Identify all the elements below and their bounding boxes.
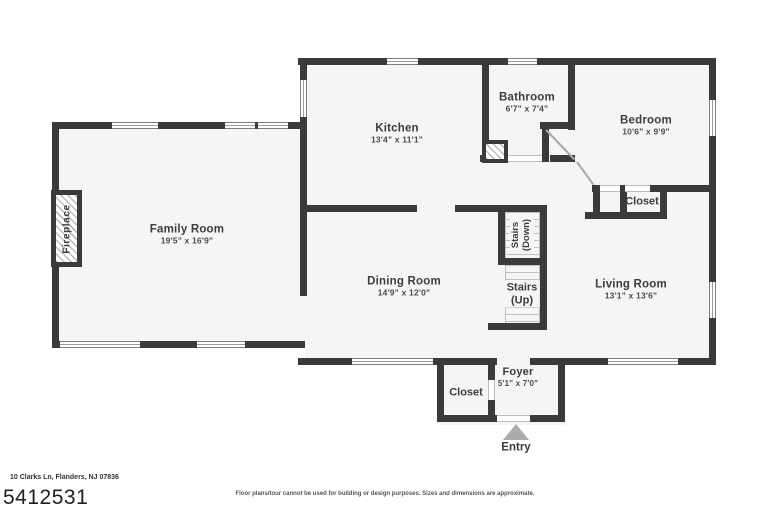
window (112, 122, 158, 129)
window (608, 358, 678, 365)
wall (488, 400, 495, 418)
wall (498, 205, 505, 265)
wall (558, 362, 565, 422)
window (387, 58, 418, 65)
footer-disclaimer: Floor plans/tour cannot be used for buil… (235, 491, 534, 497)
fireplace-label: Fireplace (61, 204, 72, 253)
stairs-down-label: Stairs (Down) (510, 217, 534, 253)
room-label-kitchen: Kitchen 13'4" x 11'1" (371, 123, 423, 146)
wall (488, 362, 495, 380)
stairs-up-label: Stairs (Up) (505, 280, 540, 307)
wall (488, 323, 547, 330)
wall (305, 205, 417, 212)
window (258, 122, 288, 129)
chimney (482, 140, 508, 163)
wall (542, 122, 549, 162)
window (197, 341, 245, 348)
room-label-bedroom: Bedroom 10'6" x 9'9" (620, 115, 672, 138)
wall (660, 185, 667, 219)
door-threshold (508, 155, 542, 162)
wall (298, 58, 716, 65)
entry-arrow-icon (503, 424, 529, 440)
wall (593, 185, 600, 219)
footer-mls-number: 5412531 (3, 486, 88, 510)
window (60, 341, 140, 348)
room-label-foyer-closet: Closet (449, 387, 483, 400)
footer-address: 10 Clarks Ln, Flanders, NJ 07836 (10, 474, 119, 481)
fireplace: Fireplace (51, 190, 82, 267)
window (709, 282, 716, 318)
room-label-bedroom-closet: Closet (625, 196, 659, 209)
room-label-family-room: Family Room 19'5" x 16'9" (150, 224, 224, 247)
door-threshold (600, 185, 620, 192)
window (300, 80, 307, 117)
wall (437, 358, 444, 422)
room-label-foyer: Foyer 5'1" x 7'0" (498, 366, 538, 388)
window (352, 358, 433, 365)
wall (568, 58, 575, 130)
room-label-living-room: Living Room 13'1" x 13'6" (595, 279, 667, 302)
window (508, 58, 537, 65)
room-label-dining-room: Dining Room 14'9" x 12'0" (367, 276, 441, 299)
wall (540, 205, 547, 330)
door-threshold (497, 415, 530, 422)
window (709, 100, 716, 136)
wall (482, 58, 489, 140)
window (225, 122, 255, 129)
floorplan-canvas: Fireplace Kitchen 13'4" x 11'1" Bathroom… (0, 0, 768, 512)
door-threshold (488, 380, 495, 400)
door-threshold (625, 185, 650, 192)
room-label-bathroom: Bathroom 6'7" x 7'4" (499, 92, 555, 115)
entry-label: Entry (501, 441, 530, 454)
